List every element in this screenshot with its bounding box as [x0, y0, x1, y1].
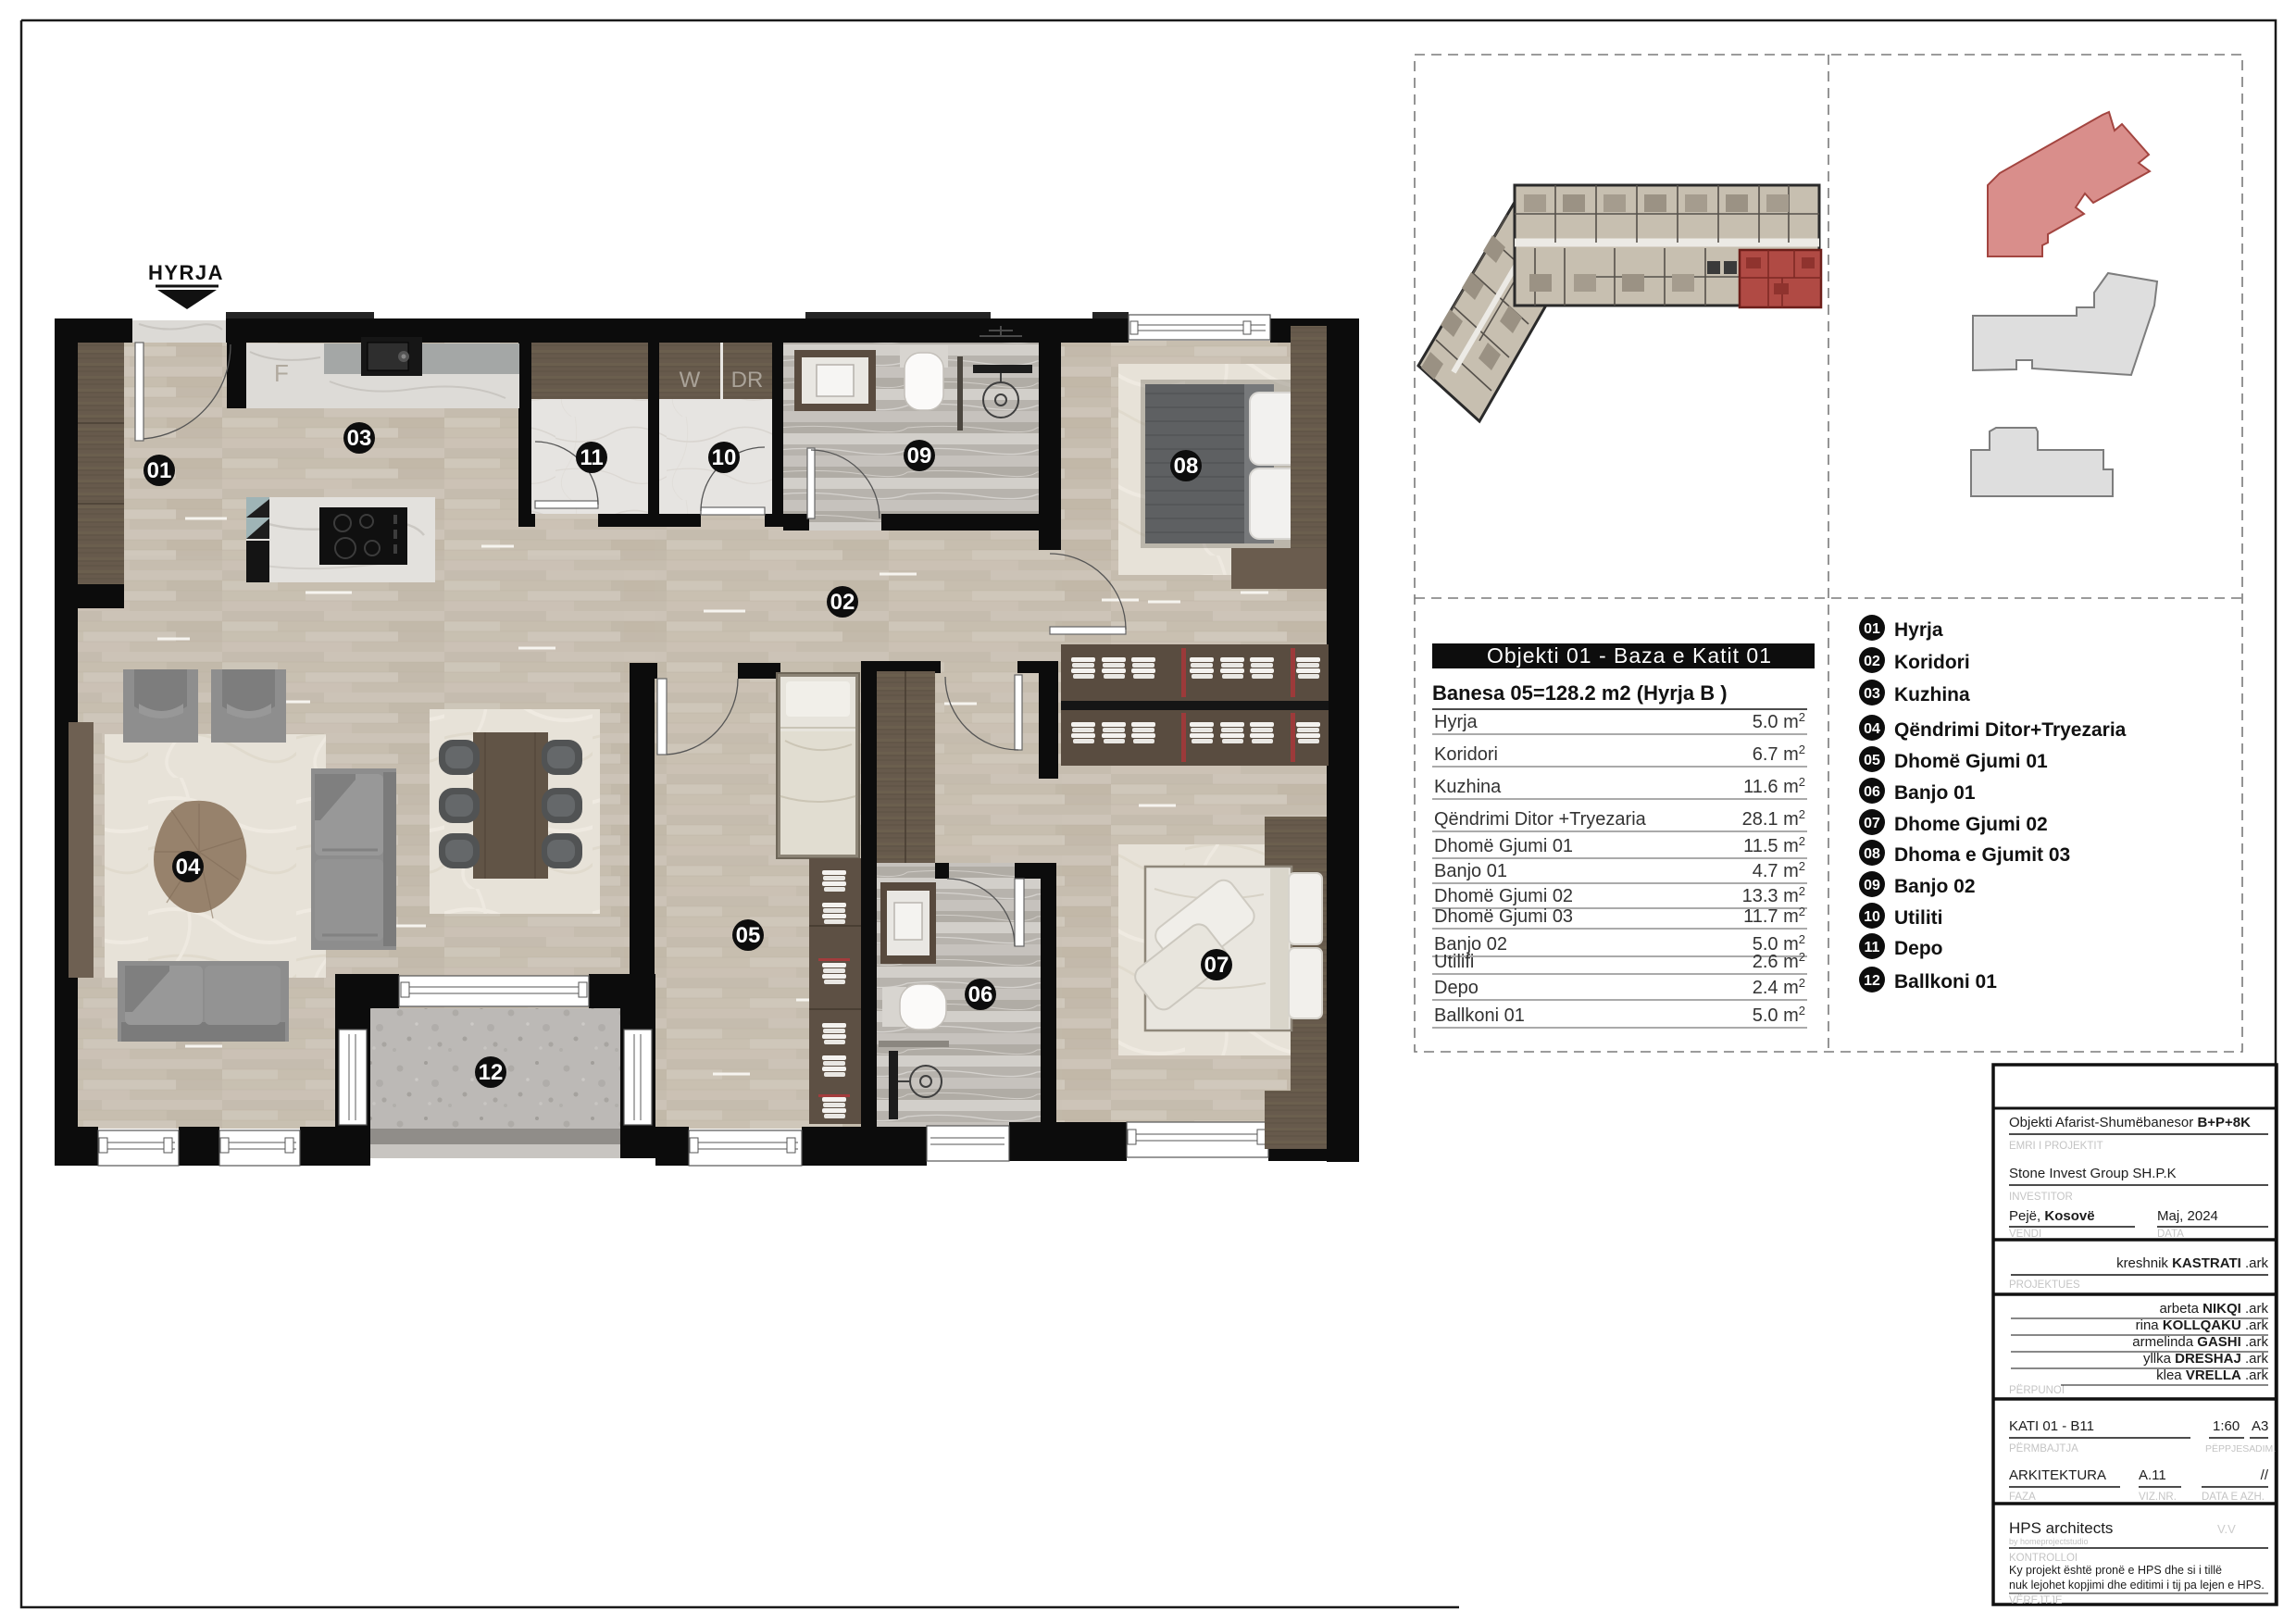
svg-text:10: 10: [712, 445, 737, 470]
svg-text:arbeta NIKQI .ark: arbeta NIKQI .ark: [2159, 1301, 2268, 1317]
svg-text:KONTROLLOI: KONTROLLOI: [2009, 1553, 2078, 1564]
svg-text:Objekti 01 - Baza e Katit 01: Objekti 01 - Baza e Katit 01: [1487, 643, 1772, 668]
svg-text:Pejë, Kosovë: Pejë, Kosovë: [2009, 1208, 2095, 1224]
svg-text:V.V: V.V: [2217, 1522, 2236, 1536]
svg-text:VËREJTJE: VËREJTJE: [2009, 1595, 2063, 1606]
svg-text:01: 01: [147, 458, 172, 483]
svg-text:yllka DRESHAJ .ark: yllka DRESHAJ .ark: [2143, 1351, 2269, 1367]
svg-text:04: 04: [176, 855, 201, 880]
svg-text:EMRI I PROJEKTIT: EMRI I PROJEKTIT: [2009, 1141, 2103, 1152]
svg-text:09: 09: [907, 443, 932, 468]
svg-text:Depo: Depo: [1894, 938, 1943, 959]
svg-text:PËPPJESA: PËPPJESA: [2205, 1443, 2255, 1454]
svg-text:Dhomë Gjumi 03: Dhomë Gjumi 03: [1434, 906, 1573, 927]
svg-text:Banjo 01: Banjo 01: [1894, 782, 1976, 804]
svg-text:03: 03: [1864, 686, 1880, 702]
svg-text:DR: DR: [731, 368, 764, 393]
svg-text:Dhome Gjumi 02: Dhome Gjumi 02: [1894, 814, 2048, 835]
svg-text:11: 11: [580, 445, 603, 470]
svg-text:Kuzhina: Kuzhina: [1894, 684, 1970, 705]
svg-text:HPS architects: HPS architects: [2009, 1519, 2113, 1537]
svg-text:6.7 m2: 6.7 m2: [1753, 743, 1805, 765]
svg-text:Dhomë Gjumi 01: Dhomë Gjumi 01: [1434, 836, 1573, 856]
svg-text:kreshnik KASTRATI .ark: kreshnik KASTRATI .ark: [2116, 1255, 2268, 1271]
svg-text:Qëndrimi Ditor +Tryezaria: Qëndrimi Ditor +Tryezaria: [1434, 809, 1647, 830]
svg-text:Koridori: Koridori: [1894, 652, 1970, 673]
svg-text:HYRJA: HYRJA: [148, 261, 224, 284]
svg-text:2.6 m2: 2.6 m2: [1753, 950, 1805, 972]
svg-text:Hyrja: Hyrja: [1434, 712, 1479, 732]
svg-text:06: 06: [1864, 784, 1880, 800]
svg-text:07: 07: [1204, 953, 1229, 978]
svg-text:Dhomë Gjumi 02: Dhomë Gjumi 02: [1434, 886, 1573, 906]
svg-text:Ky projekt është pronë e HPS d: Ky projekt është pronë e HPS dhe si i ti…: [2009, 1564, 2222, 1577]
svg-text:5.0 m2: 5.0 m2: [1753, 1004, 1805, 1026]
svg-text:by homeprojectstudio: by homeprojectstudio: [2009, 1537, 2089, 1546]
svg-text:rina KOLLQAKU .ark: rina KOLLQAKU .ark: [2136, 1317, 2269, 1333]
svg-text://: //: [2261, 1467, 2269, 1483]
svg-text:08: 08: [1174, 454, 1199, 479]
svg-text:DATA: DATA: [2157, 1229, 2184, 1240]
svg-text:Banjo 01: Banjo 01: [1434, 861, 1507, 881]
svg-text:Koridori: Koridori: [1434, 744, 1498, 765]
svg-text:DATA E AZH.: DATA E AZH.: [2202, 1492, 2265, 1503]
svg-text:Depo: Depo: [1434, 978, 1479, 998]
svg-text:Ballkoni 01: Ballkoni 01: [1894, 971, 1997, 993]
svg-text:Utiliti: Utiliti: [1894, 907, 1943, 929]
svg-text:09: 09: [1864, 878, 1880, 893]
svg-text:07: 07: [1864, 816, 1880, 831]
svg-text:Maj, 2024: Maj, 2024: [2157, 1208, 2218, 1224]
svg-text:Kuzhina: Kuzhina: [1434, 777, 1502, 797]
svg-text:12: 12: [479, 1060, 504, 1085]
svg-text:12: 12: [1864, 973, 1880, 989]
svg-text:03: 03: [347, 426, 372, 451]
svg-text:DIM.: DIM.: [2255, 1443, 2276, 1454]
svg-text:Ballkoni 01: Ballkoni 01: [1434, 1005, 1525, 1026]
svg-text:Hyrja: Hyrja: [1894, 619, 1943, 641]
svg-text:Stone Invest Group SH.P.K: Stone Invest Group SH.P.K: [2009, 1166, 2177, 1181]
svg-text:05: 05: [736, 923, 761, 948]
svg-text:06: 06: [968, 982, 993, 1007]
svg-text:10: 10: [1864, 909, 1880, 925]
svg-text:VIZ.NR.: VIZ.NR.: [2139, 1492, 2177, 1503]
svg-text:01: 01: [1864, 621, 1880, 637]
svg-text:13.3 m2: 13.3 m2: [1742, 884, 1805, 906]
svg-text:28.1 m2: 28.1 m2: [1742, 807, 1805, 830]
svg-text:KATI 01 - B11: KATI 01 - B11: [2009, 1418, 2094, 1434]
svg-text:klea VRELLA .ark: klea VRELLA .ark: [2156, 1367, 2268, 1383]
svg-text:VENDI: VENDI: [2009, 1229, 2041, 1240]
svg-text:F: F: [274, 359, 289, 387]
svg-text:PROJEKTUES: PROJEKTUES: [2009, 1280, 2080, 1291]
svg-text:11: 11: [1865, 940, 1880, 955]
svg-text:Objekti Afarist-Shumëbanesor B: Objekti Afarist-Shumëbanesor B+P+8K: [2009, 1115, 2251, 1130]
svg-text:02: 02: [830, 590, 855, 615]
svg-text:11.6 m2: 11.6 m2: [1743, 775, 1805, 797]
svg-text:A.11: A.11: [2139, 1467, 2166, 1483]
svg-text:Utilifi: Utilifi: [1434, 952, 1474, 972]
svg-text:nuk lejohet kopjimi dhe editim: nuk lejohet kopjimi dhe editimi i tij pa…: [2009, 1579, 2265, 1592]
svg-text:Dhomë Gjumi 01: Dhomë Gjumi 01: [1894, 751, 2048, 772]
svg-text:A3: A3: [2252, 1418, 2268, 1434]
svg-text:11.5 m2: 11.5 m2: [1743, 834, 1805, 856]
svg-text:4.7 m2: 4.7 m2: [1753, 859, 1805, 881]
svg-text:armelinda GASHI .ark: armelinda GASHI .ark: [2132, 1334, 2268, 1350]
svg-text:Qëndrimi Ditor+Tryezaria: Qëndrimi Ditor+Tryezaria: [1894, 719, 2127, 741]
svg-text:05: 05: [1864, 753, 1880, 768]
svg-text:1:60: 1:60: [2213, 1418, 2240, 1434]
svg-text:PËRPUNOI: PËRPUNOI: [2009, 1385, 2065, 1396]
svg-text:Banjo 02: Banjo 02: [1894, 876, 1976, 897]
svg-text:11.7 m2: 11.7 m2: [1743, 905, 1805, 927]
svg-text:W: W: [680, 368, 701, 393]
svg-text:FAZA: FAZA: [2009, 1492, 2036, 1503]
svg-text:04: 04: [1864, 721, 1880, 737]
svg-text:INVESTITOR: INVESTITOR: [2009, 1192, 2073, 1203]
svg-text:2.4 m2: 2.4 m2: [1753, 976, 1805, 998]
svg-text:Dhoma e Gjumit 03: Dhoma e Gjumit 03: [1894, 844, 2070, 866]
svg-text:ARKITEKTURA: ARKITEKTURA: [2009, 1467, 2106, 1483]
svg-text:02: 02: [1864, 654, 1880, 669]
svg-text:Banesa 05=128.2 m2 (Hyrja B ): Banesa 05=128.2 m2 (Hyrja B ): [1432, 681, 1728, 705]
svg-text:5.0 m2: 5.0 m2: [1753, 710, 1805, 732]
svg-text:PËRMBAJTJA: PËRMBAJTJA: [2009, 1443, 2078, 1454]
svg-text:08: 08: [1864, 846, 1880, 862]
